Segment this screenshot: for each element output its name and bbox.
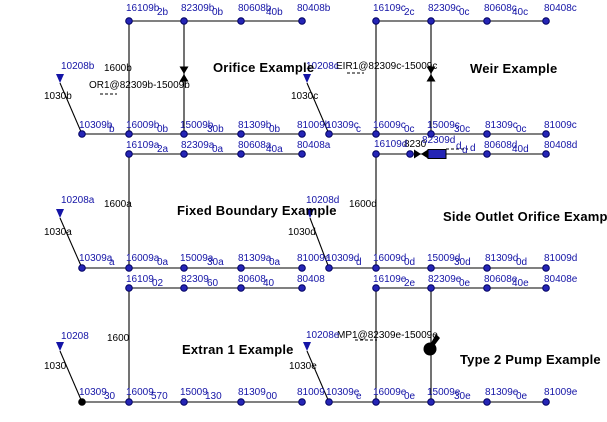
- node-dot[interactable]: [326, 131, 333, 138]
- node-label: 10208e: [306, 331, 339, 341]
- node-label: 80408b: [297, 4, 330, 14]
- inlet-marker-10208b[interactable]: [56, 74, 64, 83]
- outfall-node-dot[interactable]: [79, 399, 86, 406]
- node-dot[interactable]: [543, 285, 550, 292]
- node-label: 10309d: [326, 254, 359, 264]
- node-dot[interactable]: [299, 18, 306, 25]
- node-dot[interactable]: [484, 131, 491, 138]
- conduit-label-fragment: 40a: [266, 145, 283, 155]
- node-dot[interactable]: [543, 18, 550, 25]
- node-dot[interactable]: [181, 151, 188, 158]
- node-label: 10208a: [61, 196, 94, 206]
- conduit-annotation-label: 1030c: [291, 92, 318, 102]
- conduit-label-fragment: e: [356, 392, 362, 402]
- network-diagram: 1600bOR1@82309b-15009b1030bEIR1@82309c-1…: [0, 0, 607, 422]
- node-dot[interactable]: [79, 131, 86, 138]
- example-title: Fixed Boundary Example: [177, 205, 337, 217]
- node-label: 10309a: [79, 254, 112, 264]
- conduit-annotation-label: 1600a: [104, 200, 132, 210]
- node-label: 82309a: [181, 141, 214, 151]
- conduit-label-fragment: 30d: [454, 258, 471, 268]
- node-dot[interactable]: [299, 285, 306, 292]
- node-label: 15009: [180, 388, 208, 398]
- node-dot[interactable]: [238, 151, 245, 158]
- node-dot[interactable]: [181, 265, 188, 272]
- node-dot[interactable]: [373, 151, 380, 158]
- conduit-label-fragment: 0e: [459, 279, 470, 289]
- node-dot[interactable]: [428, 285, 435, 292]
- node-label: 81309e: [485, 388, 518, 398]
- node-label: 80408c: [544, 4, 577, 14]
- conduit-label-fragment: c: [356, 125, 361, 135]
- node-dot[interactable]: [373, 265, 380, 272]
- node-dot[interactable]: [326, 399, 333, 406]
- node-dot[interactable]: [238, 18, 245, 25]
- example-title: Weir Example: [470, 63, 557, 75]
- node-dot[interactable]: [373, 399, 380, 406]
- conduit-annotation-label: 1030e: [289, 362, 317, 372]
- side-outlet-orifice-symbol[interactable]: [414, 150, 421, 159]
- node-dot[interactable]: [126, 151, 133, 158]
- conduit-label-fragment: 2e: [404, 279, 415, 289]
- conduit-annotation-label: MP1@82309e-15009e: [337, 331, 438, 341]
- conduit-label-fragment: 130: [205, 392, 222, 402]
- conduit-label-fragment: 0e: [404, 392, 415, 402]
- example-title: Orifice Example: [213, 62, 314, 74]
- node-dot[interactable]: [484, 285, 491, 292]
- node-label: 10309: [79, 388, 107, 398]
- node-label: 81309b: [238, 121, 271, 131]
- conduit-label-fragment: 0c: [404, 125, 415, 135]
- example-title: Side Outlet Orifice Example: [443, 211, 607, 223]
- conduit-label-fragment: 40c: [512, 8, 528, 18]
- node-dot[interactable]: [428, 399, 435, 406]
- conduit-label-fragment: 00: [266, 392, 277, 402]
- node-label: 81309a: [238, 254, 271, 264]
- node-label: 82309e: [428, 275, 461, 285]
- node-dot[interactable]: [373, 18, 380, 25]
- node-dot[interactable]: [181, 18, 188, 25]
- node-label: 81309d: [485, 254, 518, 264]
- conduit-annotation-label: 1030b: [44, 92, 72, 102]
- node-label: 16109b: [126, 4, 159, 14]
- example-title: Extran 1 Example: [182, 344, 294, 356]
- app-canvas: { "canvas": { "width": 607, "height": 42…: [0, 0, 607, 422]
- node-dot[interactable]: [373, 285, 380, 292]
- conduit-label-fragment: d: [470, 144, 476, 154]
- node-dot[interactable]: [238, 265, 245, 272]
- node-dot[interactable]: [126, 131, 133, 138]
- inlet-marker-10208c[interactable]: [303, 74, 311, 83]
- conduit-label-fragment: 0b: [212, 8, 223, 18]
- conduit-label-fragment: 0e: [516, 392, 527, 402]
- node-label: 16109d: [374, 140, 407, 150]
- conduit-label-fragment: 60: [207, 279, 218, 289]
- node-label: 16109: [126, 275, 154, 285]
- node-dot[interactable]: [326, 265, 333, 272]
- conduit-label-fragment: 0c: [516, 125, 527, 135]
- conduit-label-fragment: 0d: [516, 258, 527, 268]
- node-label: 80408e: [544, 275, 577, 285]
- side-outlet-gate-rect[interactable]: [428, 150, 446, 159]
- node-label: 81309: [238, 388, 266, 398]
- weir-symbol[interactable]: [427, 74, 436, 82]
- node-label: 82309d: [422, 136, 455, 146]
- node-label: 16009b: [126, 121, 159, 131]
- node-label: 10309c: [326, 121, 359, 131]
- inlet-marker-10208[interactable]: [56, 342, 64, 351]
- conduit-label-fragment: 2b: [157, 8, 168, 18]
- conduit-label-fragment: 30c: [454, 125, 470, 135]
- conduit-label-fragment: 0a: [269, 258, 280, 268]
- conduit-annotation-label: 1600: [107, 334, 129, 344]
- node-label: 16009c: [373, 121, 406, 131]
- conduit-label-fragment: 0b: [269, 125, 280, 135]
- node-dot[interactable]: [238, 131, 245, 138]
- node-dot[interactable]: [126, 285, 133, 292]
- node-label: 16009e: [373, 388, 406, 398]
- node-dot[interactable]: [299, 399, 306, 406]
- conduit-label-fragment: 30a: [207, 258, 224, 268]
- conduit-label-fragment: 40b: [266, 8, 283, 18]
- node-dot[interactable]: [126, 399, 133, 406]
- inlet-marker-10208a[interactable]: [56, 209, 64, 218]
- conduit-label-fragment: 570: [151, 392, 168, 402]
- conduit-label-fragment: d: [462, 146, 468, 156]
- node-label: 80408a: [297, 141, 330, 151]
- side-outlet-orifice-symbol[interactable]: [421, 150, 428, 159]
- conduit-label-fragment: 0b: [157, 125, 168, 135]
- node-dot[interactable]: [299, 151, 306, 158]
- example-title: Type 2 Pump Example: [460, 354, 601, 366]
- conduit-label-fragment: 2c: [404, 8, 415, 18]
- node-dot[interactable]: [543, 131, 550, 138]
- node-label: 10309e: [326, 388, 359, 398]
- conduit-annotation-label: 1600b: [104, 64, 132, 74]
- conduit-label-fragment: 40d: [512, 145, 529, 155]
- node-dot[interactable]: [79, 265, 86, 272]
- node-label: 82309b: [181, 4, 214, 14]
- node-label: 80608: [238, 275, 266, 285]
- conduit-label-fragment: a: [109, 258, 115, 268]
- node-dot[interactable]: [484, 18, 491, 25]
- conduit-annotation-label: 1600d: [349, 200, 377, 210]
- node-dot[interactable]: [543, 399, 550, 406]
- node-label: 82309: [181, 275, 209, 285]
- node-label: 16109a: [126, 141, 159, 151]
- node-label: 16109c: [373, 4, 406, 14]
- node-label: 10309b: [79, 121, 112, 131]
- node-label: 81009: [297, 388, 325, 398]
- orifice-symbol[interactable]: [180, 67, 189, 75]
- conduit-label-fragment: 2a: [157, 145, 168, 155]
- node-label: 16009: [126, 388, 154, 398]
- node-dot[interactable]: [543, 151, 550, 158]
- conduit-label-fragment: 30b: [207, 125, 224, 135]
- node-dot[interactable]: [238, 285, 245, 292]
- node-label: 81009e: [544, 388, 577, 398]
- conduit-label-fragment: b: [109, 125, 115, 135]
- conduit-label-fragment: d: [456, 142, 462, 152]
- conduit-label-fragment: 30: [104, 392, 115, 402]
- node-label: 82309c: [428, 4, 461, 14]
- node-label: 81009c: [544, 121, 577, 131]
- node-label: 16009a: [126, 254, 159, 264]
- node-dot[interactable]: [181, 131, 188, 138]
- node-dot[interactable]: [299, 265, 306, 272]
- node-dot[interactable]: [428, 265, 435, 272]
- conduit-annotation-label: 1030d: [288, 228, 316, 238]
- node-label: 80408: [297, 275, 325, 285]
- node-dot[interactable]: [484, 265, 491, 272]
- conduit-annotation-label: OR1@82309b-15009b: [89, 81, 190, 91]
- node-label: 10208: [61, 332, 89, 342]
- node-label: 81309c: [485, 121, 518, 131]
- conduit-annotation-label: 1030: [44, 362, 66, 372]
- node-dot[interactable]: [299, 131, 306, 138]
- conduit-label-fragment: 02: [152, 279, 163, 289]
- conduit-label-fragment: 0c: [459, 8, 470, 18]
- node-dot[interactable]: [407, 151, 414, 158]
- node-dot[interactable]: [484, 151, 491, 158]
- node-label: 80408d: [544, 141, 577, 151]
- node-label: 16009d: [373, 254, 406, 264]
- node-dot[interactable]: [543, 265, 550, 272]
- node-dot[interactable]: [126, 18, 133, 25]
- conduit-annotation-label: EIR1@82309c-15009c: [336, 62, 437, 72]
- conduit-label-fragment: d: [356, 258, 362, 268]
- conduit-label-fragment: 40e: [512, 279, 529, 289]
- node-dot[interactable]: [428, 18, 435, 25]
- conduit-label-fragment: 0a: [157, 258, 168, 268]
- conduit-annotation-label: 1030a: [44, 228, 72, 238]
- node-dot[interactable]: [484, 399, 491, 406]
- node-label: 10208b: [61, 62, 94, 72]
- conduit-label-fragment: 30e: [454, 392, 471, 402]
- inlet-marker-10208e[interactable]: [303, 342, 311, 351]
- conduit-label-fragment: 0d: [404, 258, 415, 268]
- node-dot[interactable]: [126, 265, 133, 272]
- node-dot[interactable]: [181, 285, 188, 292]
- node-label: 81009d: [544, 254, 577, 264]
- node-dot[interactable]: [181, 399, 188, 406]
- conduit-label-fragment: 0a: [212, 145, 223, 155]
- node-dot[interactable]: [373, 131, 380, 138]
- node-label: 16109e: [373, 275, 406, 285]
- conduit-label-fragment: 40: [263, 279, 274, 289]
- node-dot[interactable]: [238, 399, 245, 406]
